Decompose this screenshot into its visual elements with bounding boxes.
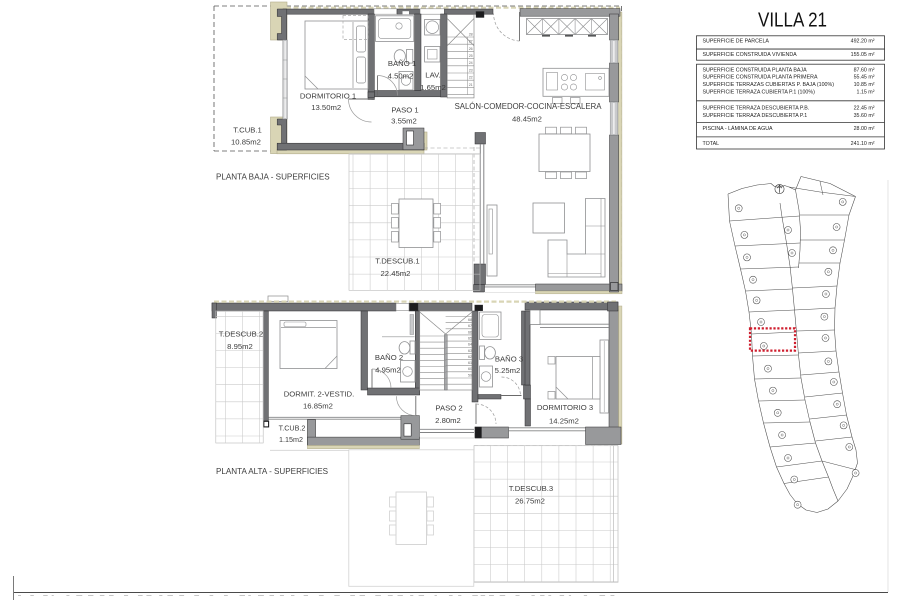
svg-text:TOTAL: TOTAL bbox=[703, 141, 720, 147]
svg-text:DORMIT. 2-VESTID.: DORMIT. 2-VESTID. bbox=[284, 390, 354, 399]
svg-text:4.50m2: 4.50m2 bbox=[388, 72, 414, 81]
svg-text:SUPERFICIE DE PARCELA: SUPERFICIE DE PARCELA bbox=[703, 39, 770, 45]
svg-text:22.45 m²: 22.45 m² bbox=[854, 106, 875, 112]
svg-text:35.60 m²: 35.60 m² bbox=[854, 113, 875, 119]
svg-text:59: 59 bbox=[468, 373, 472, 377]
svg-text:65: 65 bbox=[468, 336, 472, 340]
svg-text:1.15 m²: 1.15 m² bbox=[857, 89, 875, 95]
svg-text:DORMITORIO 1: DORMITORIO 1 bbox=[300, 91, 356, 100]
svg-text:3.55m2: 3.55m2 bbox=[391, 116, 417, 125]
svg-text:28.00 m²: 28.00 m² bbox=[854, 126, 875, 132]
svg-text:62: 62 bbox=[468, 355, 472, 359]
svg-text:61: 61 bbox=[468, 361, 472, 365]
svg-text:26: 26 bbox=[469, 47, 473, 51]
svg-text:66: 66 bbox=[468, 330, 472, 334]
svg-text:PLANTA ALTA - SUPERFICIES: PLANTA ALTA - SUPERFICIES bbox=[216, 467, 329, 476]
svg-text:SUPERFICIE TERRAZAS CUBIERTAS: SUPERFICIE TERRAZAS CUBIERTAS P. BAJA (1… bbox=[703, 82, 835, 88]
svg-text:23: 23 bbox=[469, 68, 473, 72]
svg-text:5.25m2: 5.25m2 bbox=[495, 366, 521, 375]
svg-text:SUPERFICIE TERRAZA CUBIERTA P.: SUPERFICIE TERRAZA CUBIERTA P.1 (100%) bbox=[703, 89, 816, 95]
svg-text:1.15m2: 1.15m2 bbox=[279, 435, 303, 444]
svg-text:SUPERFICIE CONSTRUIDA VIVIENDA: SUPERFICIE CONSTRUIDA VIVIENDA bbox=[703, 52, 798, 58]
svg-text:22: 22 bbox=[469, 76, 473, 80]
svg-text:155.05 m²: 155.05 m² bbox=[851, 52, 875, 58]
svg-text:BAÑO 1: BAÑO 1 bbox=[388, 59, 416, 68]
svg-text:8.95m2: 8.95m2 bbox=[227, 342, 253, 351]
svg-text:14.25m2: 14.25m2 bbox=[549, 417, 579, 426]
svg-text:SUPERFICIE CONSTRUIDA PLANTA P: SUPERFICIE CONSTRUIDA PLANTA PRIMERA bbox=[703, 75, 818, 81]
svg-text:PASO 1: PASO 1 bbox=[391, 105, 418, 114]
svg-text:87.60 m²: 87.60 m² bbox=[854, 67, 875, 73]
svg-text:T.DESCUB.1: T.DESCUB.1 bbox=[375, 256, 419, 265]
svg-text:4.95m2: 4.95m2 bbox=[375, 365, 401, 374]
svg-text:T.DESCUB.3: T.DESCUB.3 bbox=[509, 484, 553, 493]
svg-text:28: 28 bbox=[469, 32, 473, 36]
svg-text:22.45m2: 22.45m2 bbox=[381, 269, 411, 278]
svg-text:26.75m2: 26.75m2 bbox=[515, 496, 545, 505]
svg-text:63: 63 bbox=[468, 349, 472, 353]
svg-text:16.85m2: 16.85m2 bbox=[303, 402, 333, 411]
svg-text:SUPERFICIE CONSTRUIDA PLANTA B: SUPERFICIE CONSTRUIDA PLANTA BAJA bbox=[703, 67, 808, 73]
svg-text:T.DESCUB.2: T.DESCUB.2 bbox=[219, 330, 263, 339]
svg-text:VILLA 21: VILLA 21 bbox=[758, 9, 827, 31]
svg-text:BAÑO 3: BAÑO 3 bbox=[495, 355, 523, 364]
svg-text:10.85m2: 10.85m2 bbox=[231, 138, 261, 147]
svg-text:55.45 m²: 55.45 m² bbox=[854, 75, 875, 81]
svg-text:27: 27 bbox=[469, 40, 473, 44]
svg-text:LAV.: LAV. bbox=[425, 71, 440, 80]
svg-text:2.80m2: 2.80m2 bbox=[435, 416, 461, 425]
svg-text:24: 24 bbox=[469, 61, 473, 65]
svg-text:64: 64 bbox=[468, 343, 472, 347]
svg-text:PISCINA - LÁMINA DE AGUA: PISCINA - LÁMINA DE AGUA bbox=[703, 125, 774, 132]
svg-text:SUPERFICIE TERRAZA DESCUBIERTA: SUPERFICIE TERRAZA DESCUBIERTA P.1 bbox=[703, 113, 808, 119]
svg-text:1.65m2: 1.65m2 bbox=[420, 83, 446, 92]
svg-text:68: 68 bbox=[468, 318, 472, 322]
svg-text:PLANTA BAJA - SUPERFICIES: PLANTA BAJA - SUPERFICIES bbox=[216, 173, 330, 182]
svg-text:T.CUB.1: T.CUB.1 bbox=[233, 125, 262, 134]
svg-text:13.50m2: 13.50m2 bbox=[311, 103, 341, 112]
svg-text:67: 67 bbox=[468, 324, 472, 328]
svg-text:48.45m2: 48.45m2 bbox=[512, 115, 542, 124]
svg-text:SUPERFICIE TERRAZA DESCUBIERTA: SUPERFICIE TERRAZA DESCUBIERTA P.B. bbox=[703, 106, 810, 112]
svg-text:60: 60 bbox=[468, 367, 472, 371]
svg-text:241.10 m²: 241.10 m² bbox=[851, 141, 875, 147]
svg-text:T.CUB.2: T.CUB.2 bbox=[279, 423, 306, 432]
svg-text:492.20 m²: 492.20 m² bbox=[851, 39, 875, 45]
svg-text:PASO 2: PASO 2 bbox=[435, 404, 462, 413]
svg-text:BAÑO 2: BAÑO 2 bbox=[375, 353, 403, 362]
svg-text:DORMITORIO 3: DORMITORIO 3 bbox=[537, 403, 593, 412]
svg-text:10.85 m²: 10.85 m² bbox=[854, 82, 875, 88]
svg-text:21: 21 bbox=[469, 83, 473, 87]
svg-text:SALÓN-COMEDOR-COCINA-ESCALERA: SALÓN-COMEDOR-COCINA-ESCALERA bbox=[455, 102, 603, 111]
svg-text:25: 25 bbox=[469, 54, 473, 58]
